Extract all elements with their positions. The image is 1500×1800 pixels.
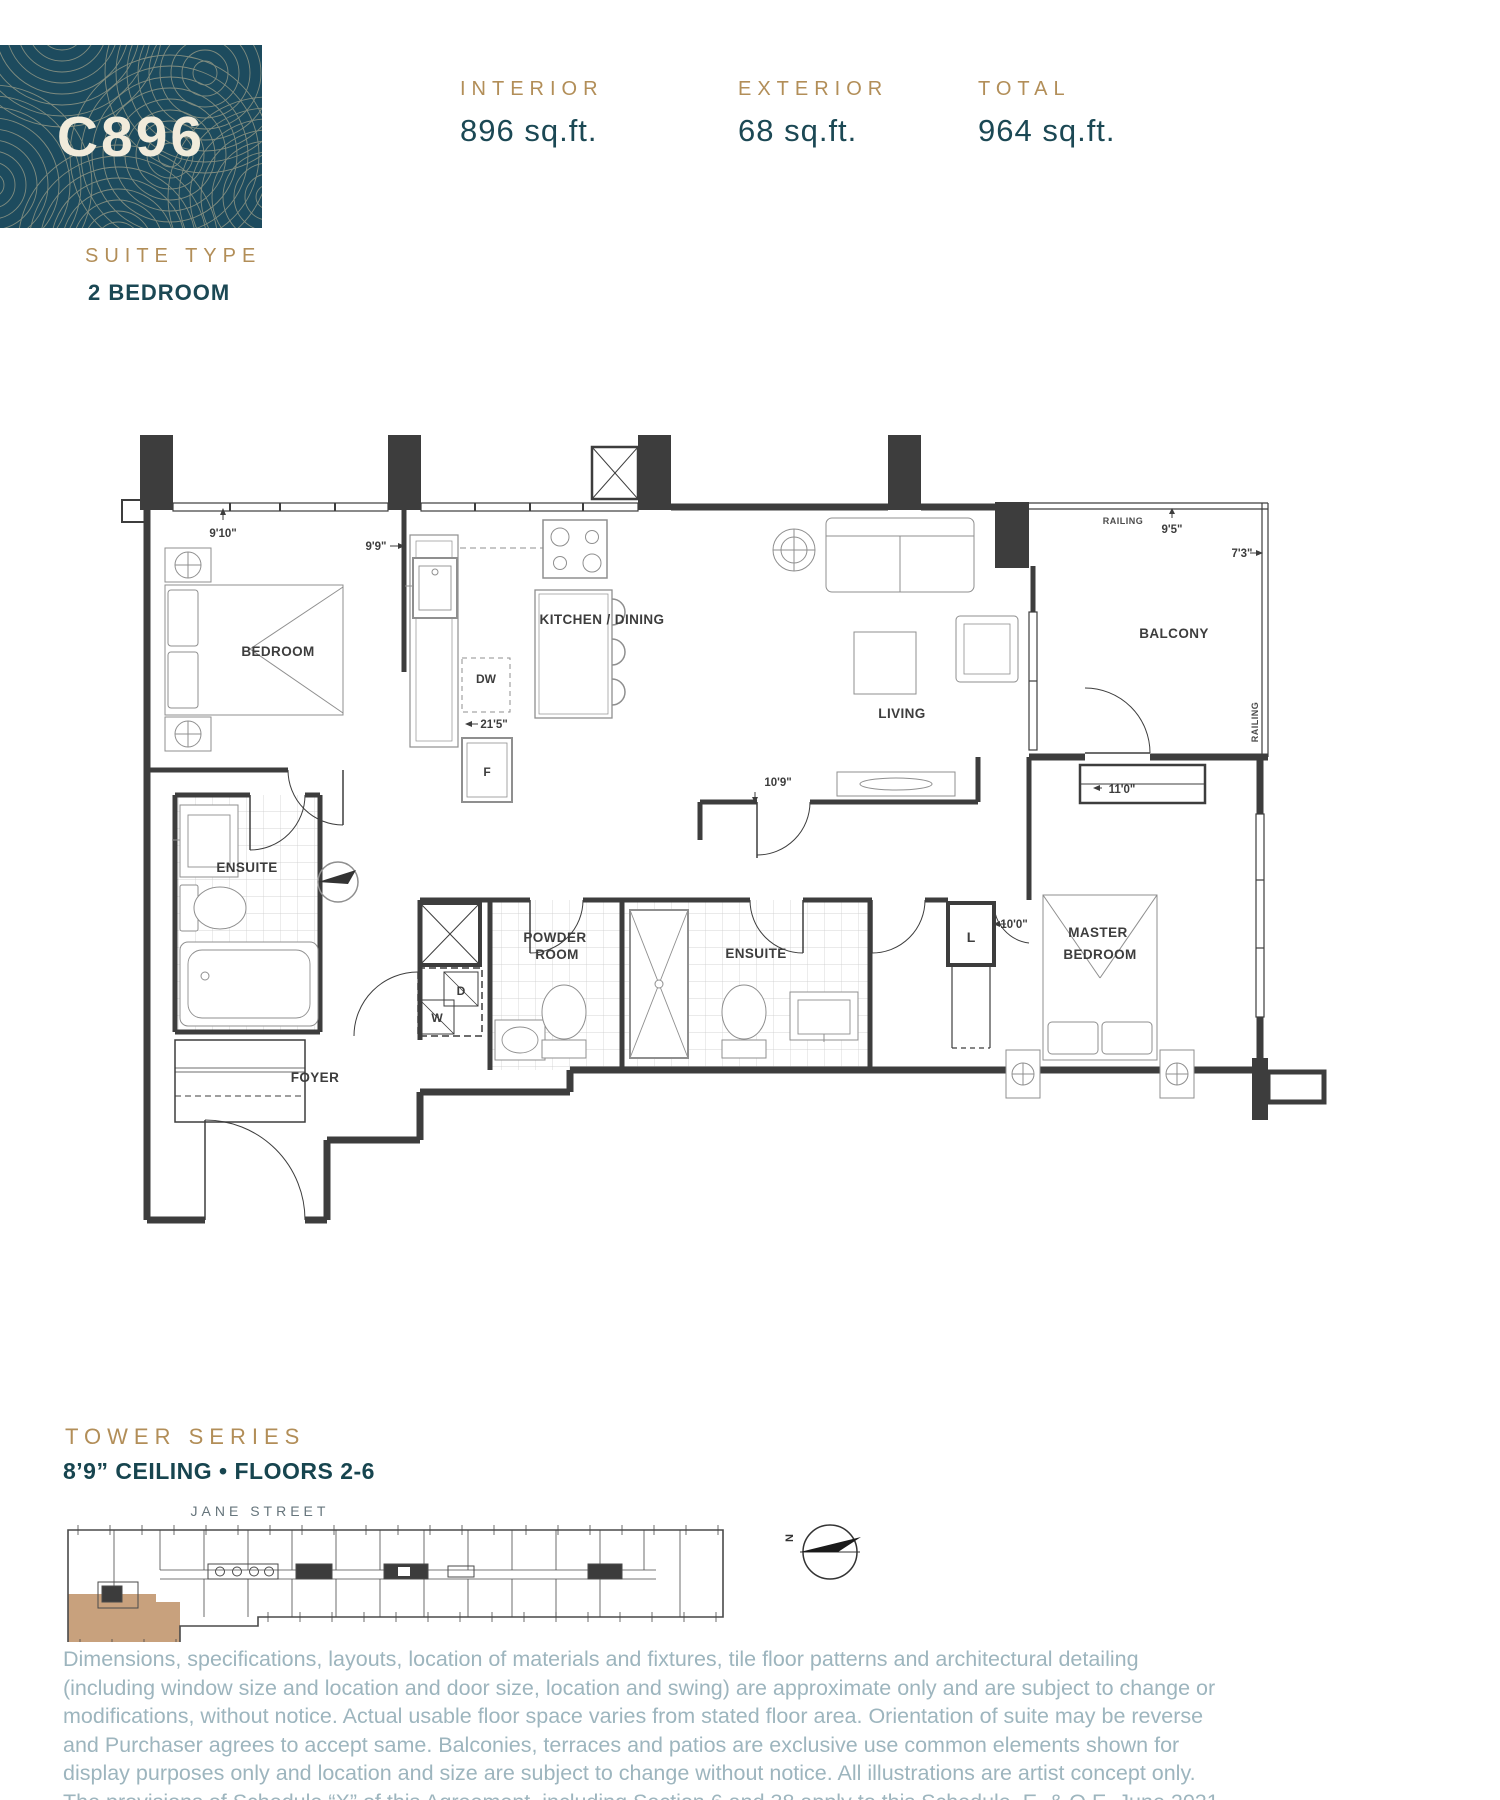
kitchen-fixtures [405,520,625,802]
dim-bedroom-width: 9'10" [209,528,236,540]
linen-label: L [967,929,976,945]
unit-code: C896 [57,104,205,170]
suite-type-label: SUITE TYPE [85,245,261,268]
floorplan-sheet: C896 SUITE TYPE 2 BEDROOM INTERIOR 896 s… [0,0,1500,1800]
dim-balcony-depth: 7'3" [1232,548,1253,560]
railing-side-label: RAILING [1250,702,1260,743]
railing-top-label: RAILING [1103,516,1144,526]
highlighted-suite [68,1594,180,1642]
unit-logo-box: C896 [0,45,262,228]
dryer-label: D [457,984,466,998]
series-label: TOWER SERIES [65,1424,305,1450]
dimension-ticks [220,508,1263,927]
dim-living: 10'9" [764,777,791,789]
street-label: JANE STREET [191,1503,330,1519]
dim-closet: 11'0" [1109,784,1136,796]
fridge-label: F [483,765,490,779]
north-label: N [784,1534,796,1542]
stat-exterior-value: 68 sq.ft. [738,113,888,149]
foyer-label: FOYER [291,1070,340,1085]
living-label: LIVING [878,706,925,721]
dim-master: 10'0" [1000,919,1027,931]
ensuite1-label: ENSUITE [216,860,277,875]
stat-exterior: EXTERIOR 68 sq.ft. [738,78,888,149]
stat-total-value: 964 sq.ft. [978,113,1116,149]
dim-balcony-width: 9'5" [1162,524,1183,536]
dishwasher-label: DW [476,672,497,686]
stat-total-label: TOTAL [978,78,1116,101]
core-boxes [98,1564,622,1608]
stat-total: TOTAL 964 sq.ft. [978,78,1116,149]
dim-bedroom-depth: 9'9" [366,541,387,553]
north-arrow-icon: N [784,1525,861,1579]
stat-interior-label: INTERIOR [460,78,604,101]
balcony-label: BALCONY [1139,626,1209,641]
ceiling-floors: 8’9” CEILING • FLOORS 2-6 [63,1458,375,1485]
living-furniture [773,518,1018,796]
suite-type-value: 2 BEDROOM [88,280,230,306]
door-swing-icon [318,862,358,902]
stat-exterior-label: EXTERIOR [738,78,888,101]
washer-label: W [431,1011,443,1025]
stat-interior-value: 896 sq.ft. [460,113,604,149]
ensuite2-label: ENSUITE [725,946,786,961]
disclaimer-text: Dimensions, specifications, layouts, loc… [63,1645,1233,1800]
dim-kitchen: 21'5" [480,719,507,731]
floor-plan: BEDROOM KITCHEN / DINING LIVING BALCONY … [110,420,1350,1245]
stat-interior: INTERIOR 896 sq.ft. [460,78,604,149]
bedroom-label: BEDROOM [241,644,314,659]
kitchen-label: KITCHEN / DINING [540,612,665,627]
keyplan: JANE STREET [60,1502,890,1642]
